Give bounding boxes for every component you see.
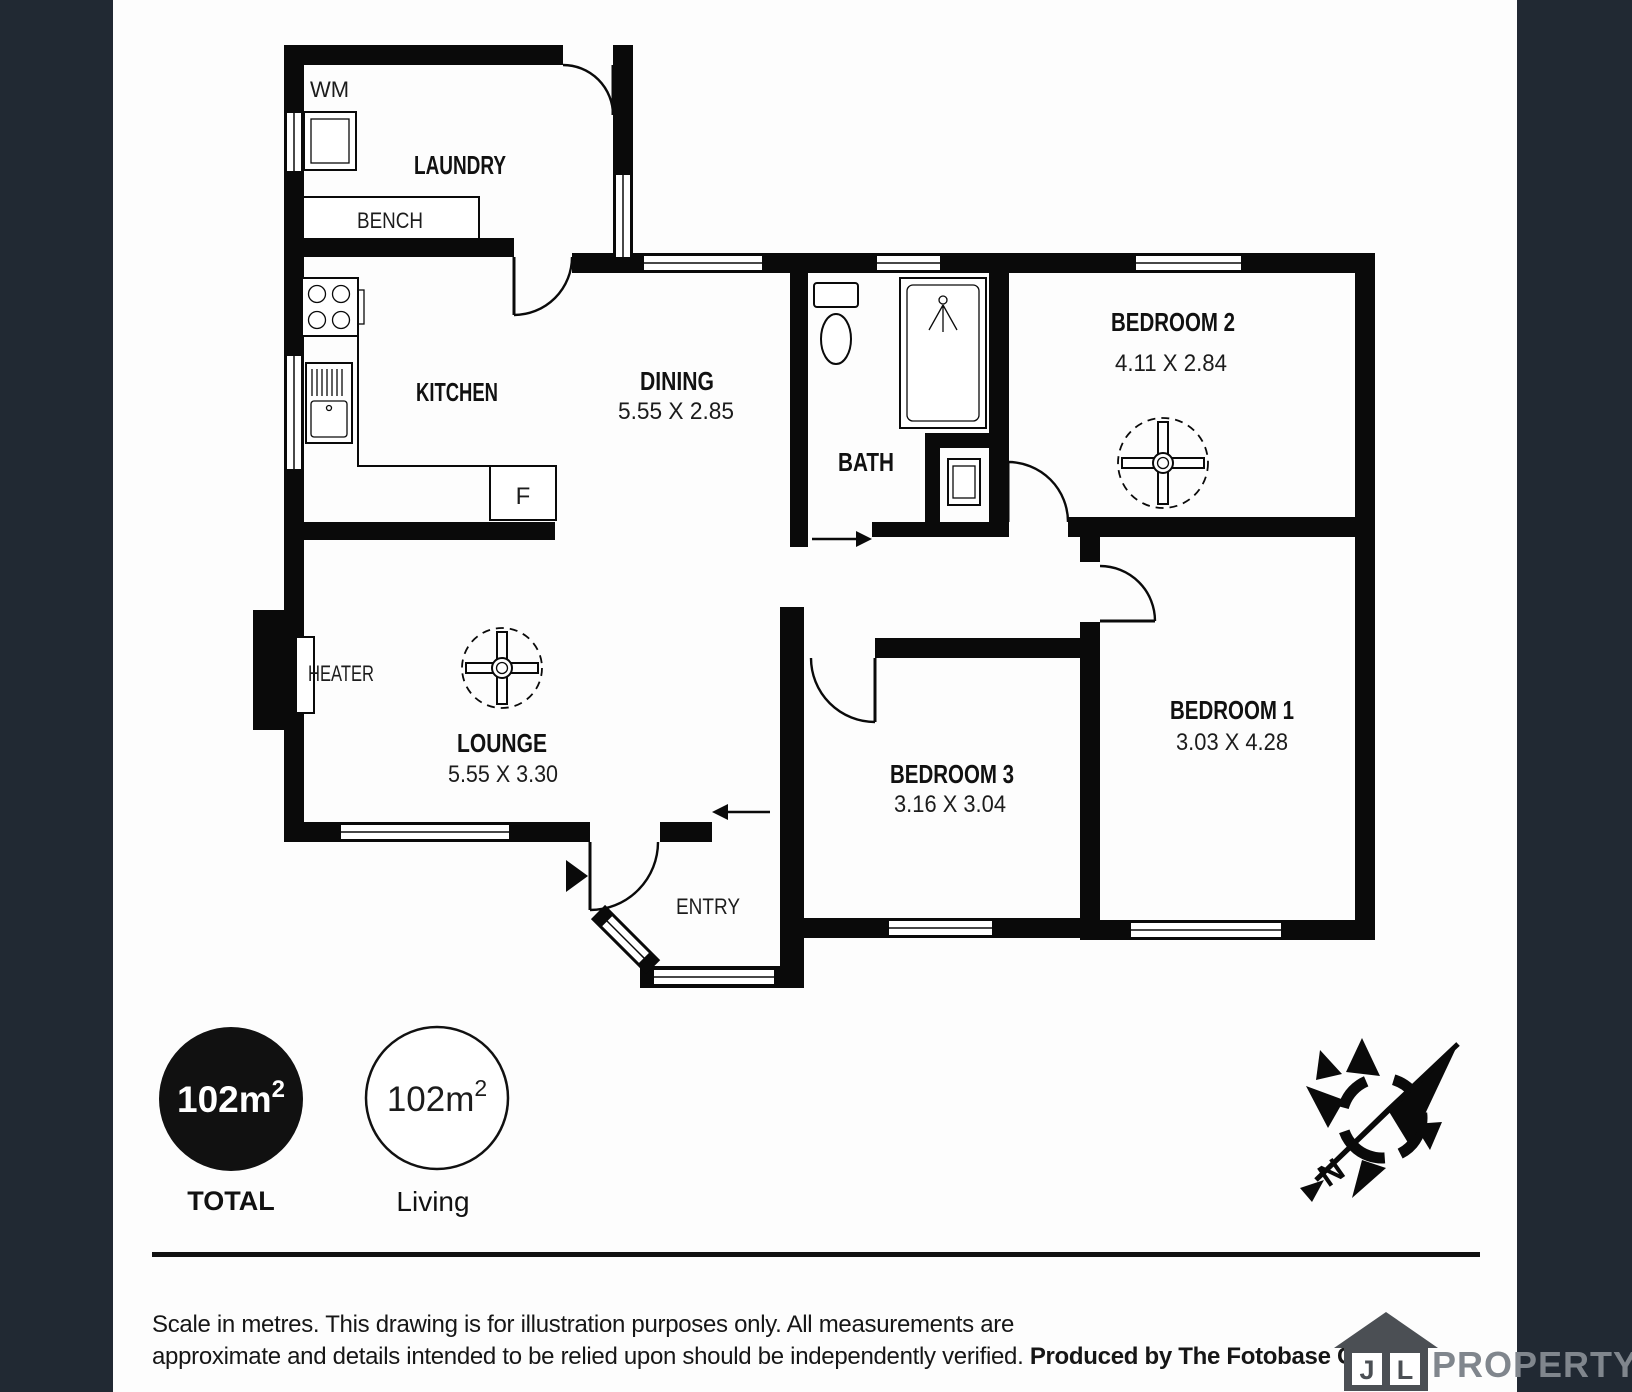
brand-letter-j: J [1359,1355,1374,1385]
bedroom1-dims: 3.03 X 4.28 [1176,729,1288,756]
right-sidebar [1517,0,1632,1392]
disclaimer-line2: approximate and details intended to be r… [152,1343,1408,1370]
shower-icon [900,278,986,428]
kitchen-label: KITCHEN [416,377,498,407]
living-area-value: 102m2 [387,1075,487,1119]
living-area-caption: Living [396,1186,469,1217]
brand-house-icon [1334,1312,1438,1391]
dining-label: DINING [640,366,714,396]
footer-divider [152,1252,1480,1257]
washing-machine-icon [304,112,356,170]
ceiling-fan-lounge [462,628,542,708]
total-area-caption: TOTAL [187,1186,275,1216]
entry-door-marker [566,860,588,892]
bedroom3-label: BEDROOM 3 [890,759,1014,789]
fridge-label: F [516,483,531,510]
disclaimer-line1: Scale in metres. This drawing is for ill… [152,1311,1014,1338]
compass-icon: N [1300,1038,1458,1202]
total-area-value: 102m2 [177,1076,285,1120]
dining-dims: 5.55 X 2.85 [618,398,734,425]
basin-icon [948,459,980,505]
stove-icon [302,278,364,336]
living-area-badge: 102m2 Living [366,1027,508,1217]
laundry-label: LAUNDRY [414,150,506,180]
bench-label: BENCH [357,208,423,233]
lounge-label: LOUNGE [457,728,547,758]
walls [253,45,1375,988]
brand-letter-l: L [1397,1355,1414,1385]
bedroom1-label: BEDROOM 1 [1170,695,1294,725]
bedroom3-dims: 3.16 X 3.04 [894,791,1006,818]
bath-label: BATH [838,447,894,477]
bedroom2-dims: 4.11 X 2.84 [1115,350,1227,377]
floorplan-drawing: LAUNDRY WM BENCH KITCHEN DINING 5.55 X 2… [0,0,1632,1392]
sink-icon [306,363,352,443]
doors [514,65,1155,910]
toilet-icon [814,283,858,364]
brand-name: PROPERTY [1432,1344,1632,1385]
floorplan-page: LAUNDRY WM BENCH KITCHEN DINING 5.55 X 2… [0,0,1632,1392]
lounge-dims: 5.55 X 3.30 [448,761,558,788]
entry-arrow-left [712,804,770,820]
entry-label: ENTRY [676,894,740,919]
bedroom2-label: BEDROOM 2 [1111,307,1235,337]
total-area-badge: 102m2 TOTAL [159,1027,303,1216]
heater-label: HEATER [308,661,374,686]
left-sidebar [0,0,113,1392]
hall-arrow-right [812,531,872,547]
wm-label: WM [310,77,349,102]
ceiling-fan-bedroom2 [1118,418,1208,508]
